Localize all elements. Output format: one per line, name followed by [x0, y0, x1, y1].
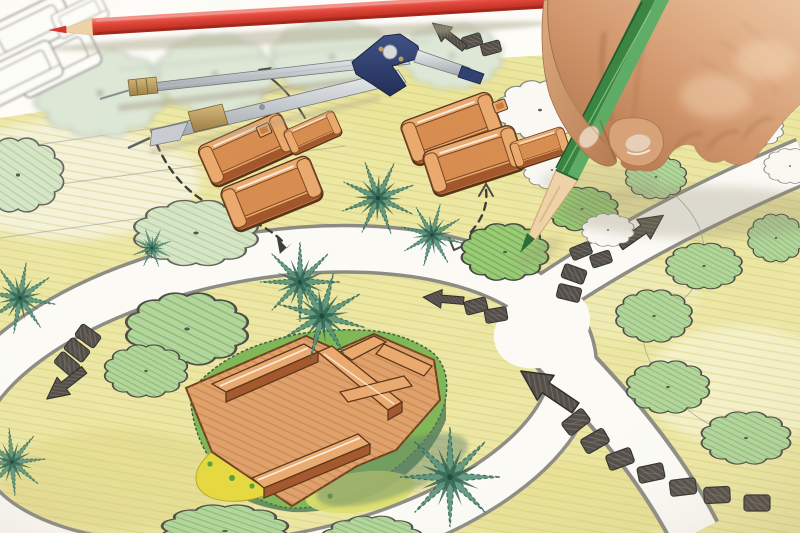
vignette	[0, 0, 800, 533]
photo-landscape-plan	[0, 0, 800, 533]
landscape-plan-scene	[0, 0, 800, 533]
